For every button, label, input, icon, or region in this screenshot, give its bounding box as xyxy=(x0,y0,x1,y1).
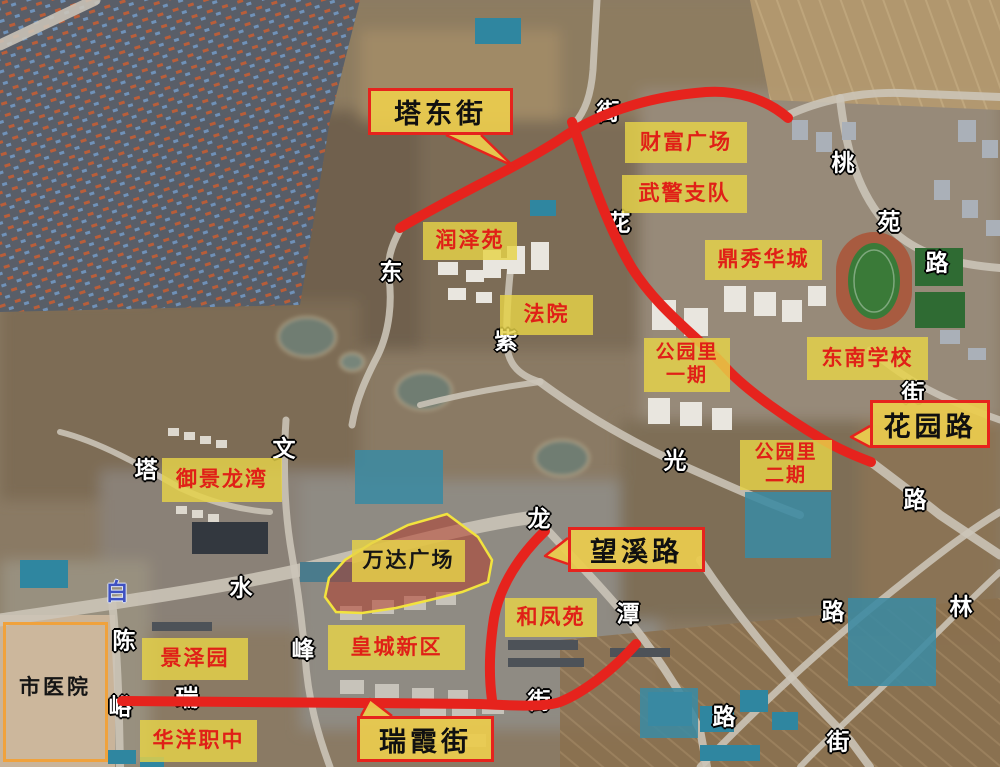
road-callout-ta-dong-jie: 塔东街 xyxy=(368,88,513,135)
hospital-label: 市医院 xyxy=(19,671,91,701)
road-callouts-layer: 塔东街望溪路花园路瑞霞街 xyxy=(0,0,1000,767)
satellite-map-canvas: 街花峪瑞街 东紫桃苑路街路文塔光龙水白潭路林路街陈峰 财富广场武警支队鼎秀华城东… xyxy=(0,0,1000,767)
road-callout-wang-xi-lu: 望溪路 xyxy=(568,527,705,572)
road-callout-hua-yuan-lu: 花园路 xyxy=(870,400,990,448)
hospital-area-box: 市医院 xyxy=(3,622,108,762)
road-callout-rui-xia-jie: 瑞霞街 xyxy=(357,716,494,762)
